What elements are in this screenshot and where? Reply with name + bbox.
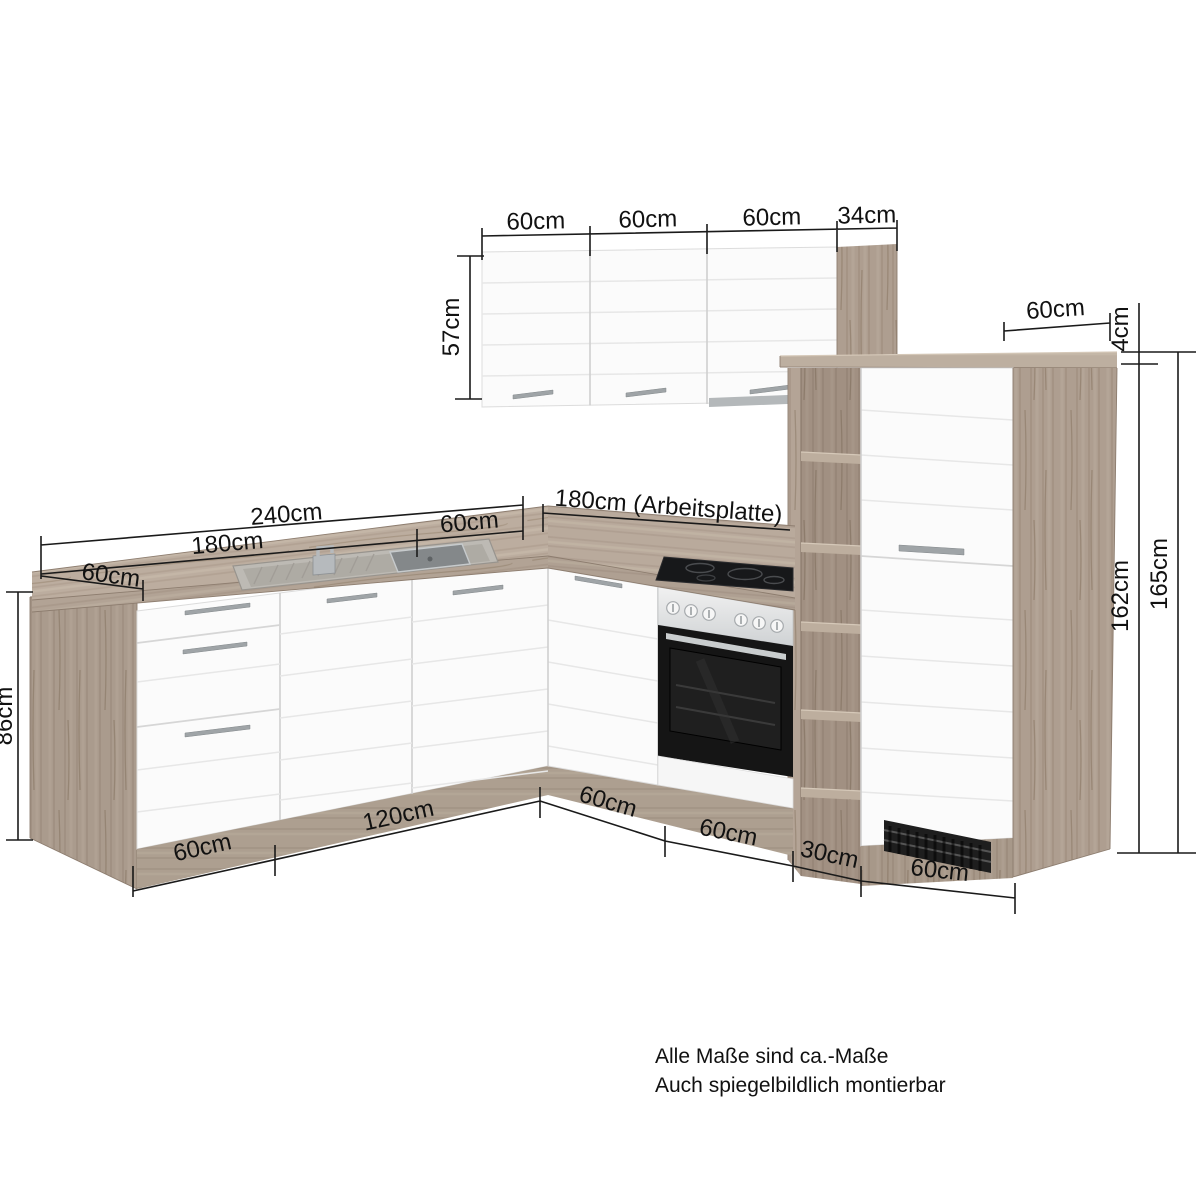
label-wall-seg1: 60cm	[506, 207, 565, 235]
label-wall-height: 57cm	[438, 298, 465, 357]
oven	[658, 587, 793, 808]
label-wall-seg2: 60cm	[618, 205, 677, 233]
label-tall-total-height: 165cm	[1146, 538, 1173, 610]
label-wall-seg4: 34cm	[837, 201, 896, 229]
label-countertop-right: 60cm	[439, 507, 500, 539]
notes: Alle Maße sind ca.-Maße Auch spiegelbild…	[655, 1045, 946, 1097]
wall-cabinet-run	[482, 247, 838, 407]
wall-cabinet-body	[482, 247, 837, 407]
kitchen-dimension-diagram: 60cm 60cm 60cm 34cm 57cm 60cm 4cm 162cm …	[0, 0, 1200, 1200]
tall-unit	[780, 352, 1117, 886]
label-worktop-thickness: 4cm	[1107, 306, 1134, 351]
upper-wood-column-shade	[837, 244, 897, 356]
upper-wood-column	[837, 244, 897, 356]
label-countertop-total: 240cm	[249, 498, 323, 531]
label-tall-body-height: 162cm	[1107, 560, 1134, 632]
base-run-left	[30, 559, 548, 889]
base-left-side-panel-shade	[30, 587, 137, 889]
diagram-svg: 60cm 60cm 60cm 34cm 57cm 60cm 4cm 162cm …	[0, 0, 1200, 1200]
note-line-2: Auch spiegelbildlich montierbar	[655, 1074, 946, 1097]
note-line-1: Alle Maße sind ca.-Maße	[655, 1045, 888, 1068]
faucet	[313, 554, 335, 575]
sink-drain	[428, 557, 433, 562]
label-base-height: 86cm	[0, 687, 18, 746]
label-wall-seg3: 60cm	[742, 203, 801, 231]
tall-unit-right-panel-shade	[1013, 368, 1117, 877]
base-run-front	[548, 568, 793, 856]
tall-cabinet-door	[861, 368, 1013, 846]
label-tall-top-depth: 60cm	[1025, 294, 1085, 325]
corner-door	[548, 568, 658, 785]
